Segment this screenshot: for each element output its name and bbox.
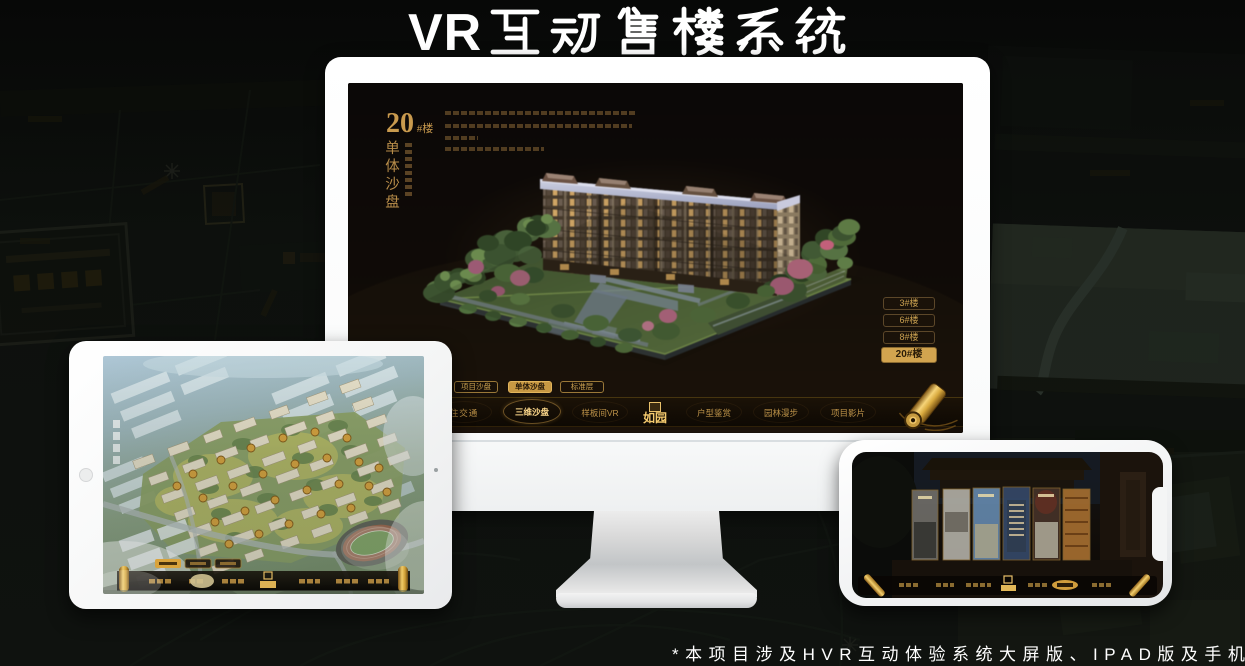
svg-text:VR: VR [408, 4, 482, 62]
